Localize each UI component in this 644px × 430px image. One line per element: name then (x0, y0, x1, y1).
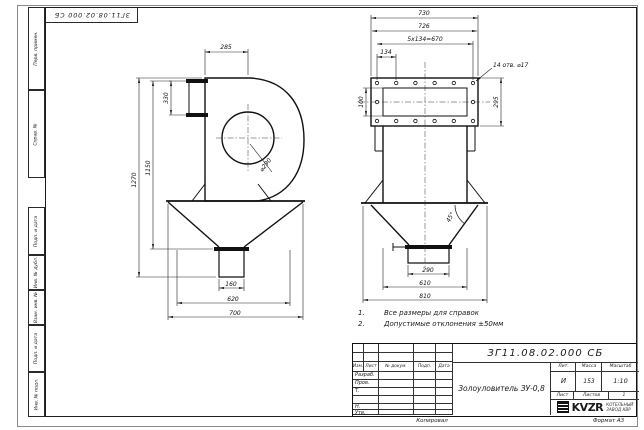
col-data: Дата (436, 362, 453, 372)
note-number: 2. (352, 319, 384, 330)
dim-label-290: 290 (422, 267, 434, 274)
dim-label-1150: 1150 (145, 160, 152, 175)
holes-note-label: 14 отв. ⌀17 (493, 62, 528, 69)
dim-label-700: 700 (229, 310, 241, 317)
part-title: Золоуловитель ЗУ-0,8 (453, 362, 550, 415)
dim-label-730: 730 (418, 10, 430, 17)
dim-label-160: 160 (225, 281, 237, 288)
dim-label-620: 620 (227, 296, 239, 303)
note-text: Все размеры для справок (384, 308, 479, 319)
col-list: Лист (364, 362, 379, 372)
scale-value: 1:10 (601, 371, 639, 392)
dim-label-285: 285 (220, 44, 232, 51)
dim-label-610: 610 (419, 280, 431, 287)
mass-value: 153 (575, 371, 602, 392)
front-view-dimensions (363, 15, 504, 303)
drawing-sheet: Перв. примен. Справ. № Подп. и дата Инв.… (0, 0, 644, 430)
dim-label-726: 726 (418, 23, 430, 30)
col-dokum: № докум. (379, 362, 414, 372)
company-cell: KVZR КОТЕЛЬНЫЙ ЗАВОД КВР (550, 399, 639, 415)
note-number: 1. (352, 308, 384, 319)
dim-label-134: 134 (380, 49, 392, 56)
col-izm: Изм. (353, 362, 364, 372)
row-prov: Пров. (353, 380, 379, 388)
dim-label-pitch: 5x134=670 (407, 36, 442, 43)
front-view (359, 62, 490, 268)
company-name-line2: ЗАВОД КВР (606, 407, 633, 412)
dim-label-1270: 1270 (131, 172, 138, 187)
row-razrab: Разраб. (353, 372, 379, 380)
row-utv: Утв. (353, 410, 379, 415)
angle-label-45: 45° (445, 211, 456, 224)
notes-list: 1. Все размеры для справок 2. Допустимые… (352, 308, 622, 330)
dim-label-330: 330 (163, 92, 170, 104)
format-label: Формат А3 (580, 418, 637, 424)
side-view-dimensions (136, 49, 303, 320)
copied-label: Копировал (352, 418, 512, 424)
company-logo-text: KVZR (572, 401, 603, 414)
dim-label-295: 295 (493, 96, 500, 108)
title-block: Изм. Лист № докум. Подп. Дата Разраб. Пр… (352, 343, 637, 417)
side-view (166, 78, 305, 277)
title-block-revision-grid: Изм. Лист № докум. Подп. Дата Разраб. Пр… (353, 344, 453, 415)
side-view-dim-labels: 285 330 1150 1270 ⌀290 160 620 700 (131, 44, 273, 317)
note-item: 2. Допустимые отклонения ±50мм (352, 319, 622, 330)
row-t-kontr: Т. контр. (353, 388, 379, 396)
company-name: КОТЕЛЬНЫЙ ЗАВОД КВР (606, 402, 633, 412)
lit-value: И (550, 371, 576, 392)
note-text: Допустимые отклонения ±50мм (384, 319, 503, 330)
dim-label-100: 100 (358, 96, 365, 108)
dim-label-810: 810 (419, 293, 431, 300)
company-logo-icon (557, 401, 569, 413)
note-item: 1. Все размеры для справок (352, 308, 622, 319)
col-podp: Подп. (414, 362, 436, 372)
doc-number: ЗГ11.08.02.000 СБ (453, 344, 638, 363)
